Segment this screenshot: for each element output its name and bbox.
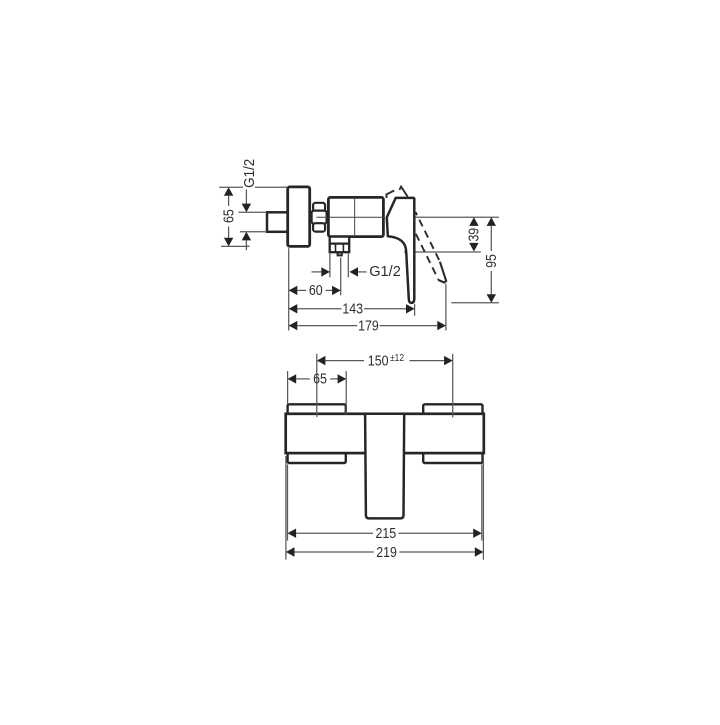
svg-text:150: 150 [368,352,389,368]
svg-text:±12: ±12 [390,352,404,363]
svg-text:65: 65 [221,209,237,223]
svg-text:G1/2: G1/2 [240,159,257,188]
svg-text:215: 215 [375,525,396,541]
svg-text:G1/2: G1/2 [369,264,401,280]
svg-text:143: 143 [342,301,363,317]
svg-text:65: 65 [313,371,327,387]
svg-text:39: 39 [466,228,482,242]
svg-text:95: 95 [483,254,499,268]
svg-text:219: 219 [376,544,397,560]
svg-text:179: 179 [358,318,379,334]
svg-text:60: 60 [309,282,323,298]
